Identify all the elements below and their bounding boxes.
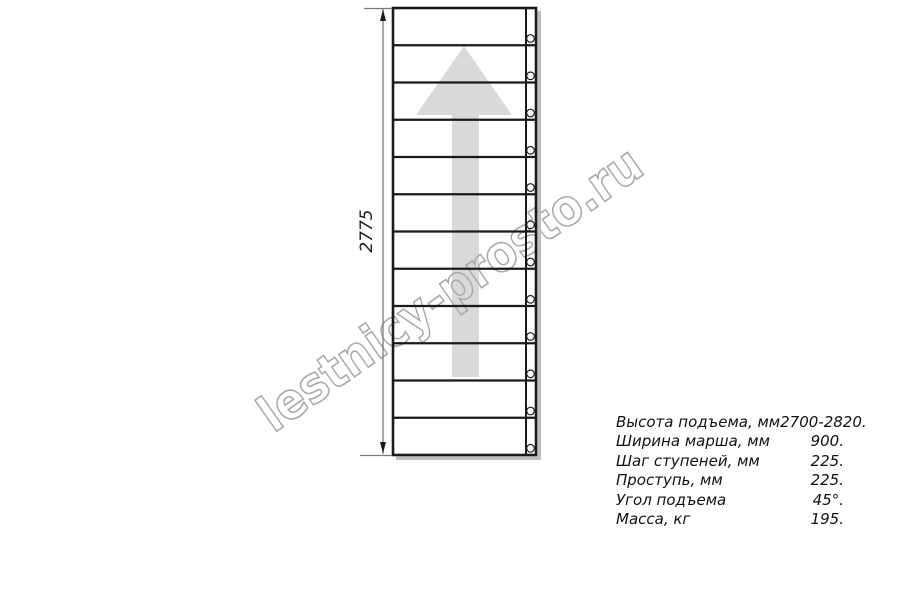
- spec-value: 195.: [811, 510, 844, 529]
- specs-table: Высота подъема, мм 2700-2820. Ширина мар…: [616, 413, 844, 529]
- spec-value: 225.: [811, 471, 844, 490]
- drawing-canvas: lestnicy-prosto.ru: [0, 0, 900, 600]
- dimension-arrowhead-up-icon: [380, 10, 386, 22]
- dimension-arrowhead-down-icon: [380, 442, 386, 454]
- spec-value: 2700-2820.: [780, 413, 867, 432]
- watermark-text: lestnicy-prosto.ru: [247, 135, 653, 443]
- fastener-circle-icon: [527, 407, 535, 415]
- spec-label: Ширина марша, мм: [616, 432, 770, 451]
- shadow-right: [538, 11, 542, 459]
- specs-row-tread: Проступь, мм 225.: [616, 471, 844, 490]
- spec-value: 45°.: [813, 491, 844, 510]
- fastener-circle-icon: [527, 370, 535, 378]
- dimension-value-label: 2775: [357, 209, 377, 252]
- spec-value: 900.: [811, 432, 844, 451]
- shadow-bottom: [396, 457, 541, 461]
- fastener-circle-icon: [527, 296, 535, 304]
- spec-value: 225.: [811, 452, 844, 471]
- specs-row-height: Высота подъема, мм 2700-2820.: [616, 413, 844, 432]
- fastener-circle-icon: [527, 221, 535, 229]
- fastener-circle-icon: [527, 333, 535, 341]
- spec-label: Угол подъема: [616, 491, 726, 510]
- fastener-circle-icon: [527, 445, 535, 453]
- specs-row-mass: Масса, кг 195.: [616, 510, 844, 529]
- dimension: 2775: [357, 9, 392, 456]
- fastener-circle-icon: [527, 109, 535, 117]
- specs-row-angle: Угол подъема 45°.: [616, 491, 844, 510]
- spec-label: Проступь, мм: [616, 471, 723, 490]
- specs-row-step: Шаг ступеней, мм 225.: [616, 452, 844, 471]
- spec-label: Масса, кг: [616, 510, 690, 529]
- spec-label: Шаг ступеней, мм: [616, 452, 760, 471]
- fastener-circle-icon: [527, 147, 535, 155]
- specs-row-width: Ширина марша, мм 900.: [616, 432, 844, 451]
- fastener-circle-icon: [527, 184, 535, 192]
- fastener-circle-icon: [527, 72, 535, 80]
- fastener-circle-icon: [527, 258, 535, 266]
- spec-label: Высота подъема, мм: [616, 413, 780, 432]
- fastener-circle-icon: [527, 35, 535, 43]
